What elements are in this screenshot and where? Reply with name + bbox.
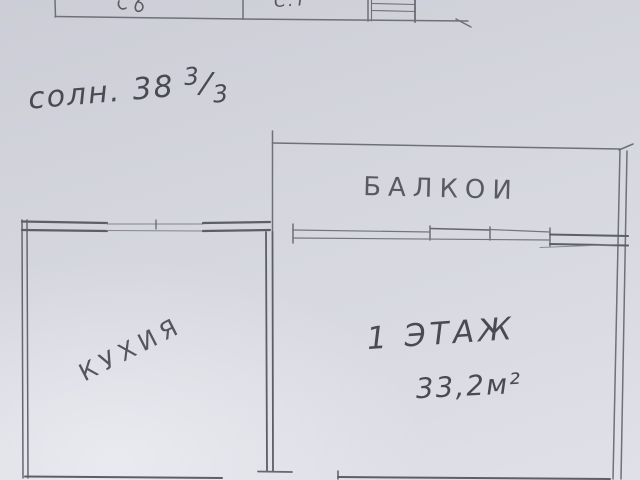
upper-room-label: С.Т <box>273 0 308 12</box>
handwriting-fragment <box>118 0 142 11</box>
balcony-label: БАЛКОИ <box>363 172 519 206</box>
room-bottom-wall <box>338 471 610 479</box>
address-prefix: солн. 38 <box>27 69 176 117</box>
fraction-denominator: 3 <box>212 79 232 108</box>
room-window-wall <box>293 224 628 248</box>
floorplan-photo: С.Т солн. 383/3 БАЛКОИ КУХИЯ 1 ЭТАЖ 33,2… <box>0 0 640 480</box>
upper-floor-outline <box>55 0 471 27</box>
area-label: 33,2м² <box>415 367 523 406</box>
address-fraction: 3/3 <box>183 59 232 111</box>
